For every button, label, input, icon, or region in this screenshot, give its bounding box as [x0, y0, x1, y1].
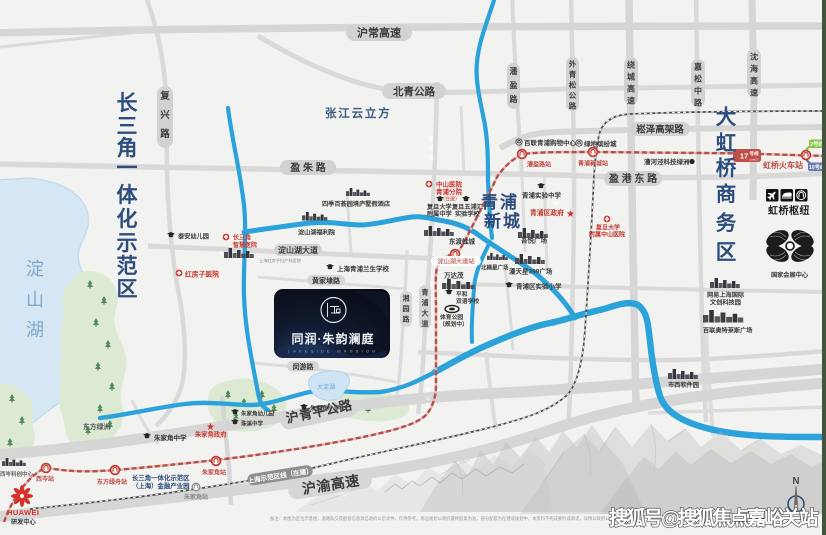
svg-text:大: 大	[716, 105, 737, 129]
svg-text:盈 港 东 路: 盈 港 东 路	[608, 172, 658, 185]
svg-text:三: 三	[117, 115, 138, 138]
svg-text:大: 大	[422, 309, 429, 318]
svg-text:范: 范	[117, 255, 138, 278]
svg-text:沪常高速: 沪常高速	[357, 26, 401, 40]
svg-text:商: 商	[716, 182, 737, 206]
svg-text:智慧医院: 智慧医院	[233, 241, 257, 249]
svg-text:外: 外	[569, 59, 577, 69]
svg-text:附属中山医院: 附属中山医院	[589, 231, 625, 239]
svg-text:闵游路: 闵游路	[293, 362, 315, 371]
svg-text:17: 17	[740, 152, 748, 161]
svg-text:路: 路	[403, 315, 411, 324]
svg-text:朱家角站: 朱家角站	[184, 493, 208, 501]
svg-text:松: 松	[694, 74, 702, 84]
svg-text:东方绿洲: 东方绿洲	[83, 422, 110, 431]
svg-text:（上海）金融产业园: （上海）金融产业园	[132, 481, 190, 490]
svg-text:上海青浦兰生学校: 上海青浦兰生学校	[337, 264, 390, 273]
svg-text:复旦五浦汇: 复旦五浦汇	[451, 203, 484, 211]
svg-text:区: 区	[716, 241, 737, 264]
svg-text:（在建）: （在建）	[440, 196, 460, 203]
svg-text:兴: 兴	[160, 109, 170, 121]
svg-text:虹桥枢纽: 虹桥枢纽	[768, 204, 810, 217]
svg-text:西岑站: 西岑站	[36, 475, 54, 483]
svg-text:虹桥火车站: 虹桥火车站	[763, 160, 803, 170]
svg-text:高: 高	[627, 84, 635, 94]
svg-text:（规划中）: （规划中）	[439, 320, 468, 328]
svg-text:盈: 盈	[509, 81, 518, 90]
svg-text:备注：本图为区位示意图，道路轨交及配套信息源自政府公示文件，: 备注：本图为区位示意图，道路轨交及配套信息源自政府公示文件，仅供参考。周边规划以…	[270, 515, 627, 522]
svg-text:青浦新城站: 青浦新城站	[578, 160, 608, 168]
svg-text:青: 青	[422, 288, 429, 297]
svg-text:北青公路: 北青公路	[393, 85, 435, 98]
svg-text:新城: 新城	[484, 211, 522, 231]
svg-text:淀山湖大道站: 淀山湖大道站	[437, 258, 475, 266]
svg-text:淀山湖福利院: 淀山湖福利院	[298, 229, 336, 237]
svg-text:西岑科创中心: 西岑科创中心	[0, 470, 34, 478]
svg-text:朱家角站: 朱家角站	[202, 469, 226, 477]
svg-text:复旦大学: 复旦大学	[426, 203, 452, 211]
svg-text:漕河泾科技绿洲: 漕河泾科技绿洲	[644, 157, 690, 166]
svg-text:淀山湖大道: 淀山湖大道	[278, 245, 318, 255]
svg-text:一: 一	[117, 157, 138, 180]
svg-text:上海红房子妇产科医院: 上海红房子妇产科医院	[259, 257, 302, 264]
svg-text:海: 海	[750, 64, 758, 74]
svg-text:复: 复	[159, 90, 170, 102]
svg-text:平和: 平和	[456, 290, 468, 298]
svg-text:长三角: 长三角	[233, 234, 251, 242]
svg-text:北横星广场: 北横星广场	[481, 264, 509, 272]
svg-text:复旦大学: 复旦大学	[595, 224, 620, 232]
svg-text:体育公园: 体育公园	[440, 313, 463, 321]
svg-text:青浦: 青浦	[481, 192, 519, 212]
svg-text:青浦分院: 青浦分院	[436, 187, 463, 196]
svg-text:漕盈路站: 漕盈路站	[526, 161, 551, 169]
svg-text:搜狐号@搜狐焦点嘉峪关站: 搜狐号@搜狐焦点嘉峪关站	[609, 507, 819, 530]
svg-text:速: 速	[627, 96, 635, 106]
svg-text:国家会展中心: 国家会展中心	[771, 271, 809, 279]
svg-text:道: 道	[422, 319, 429, 328]
svg-text:号线: 号线	[749, 150, 759, 157]
svg-text:★: ★	[566, 209, 575, 220]
svg-text:青浦区实验小学: 青浦区实验小学	[516, 282, 562, 291]
svg-text:崧泽高架路: 崧泽高架路	[636, 124, 684, 136]
svg-text:朱家角政府: 朱家角政府	[195, 430, 227, 439]
svg-text:公: 公	[569, 91, 577, 100]
svg-text:朱: 朱	[425, 378, 431, 386]
svg-text:研发中心: 研发中心	[11, 518, 37, 526]
svg-text:体: 体	[117, 184, 139, 207]
svg-text:路: 路	[510, 94, 519, 104]
svg-text:网易上海国际: 网易上海国际	[707, 291, 745, 299]
svg-text:青浦区政府: 青浦区政府	[530, 208, 564, 217]
svg-text:泰安幼儿园: 泰安幼儿园	[177, 233, 209, 241]
svg-text:绕: 绕	[627, 60, 635, 70]
svg-text:化: 化	[117, 207, 138, 231]
svg-text:淀: 淀	[26, 259, 44, 279]
svg-text:嘉: 嘉	[693, 62, 702, 72]
svg-text:百联青浦购物中心: 百联青浦购物中心	[524, 138, 577, 147]
svg-text:河: 河	[553, 200, 558, 207]
svg-text:附属中学: 附属中学	[427, 210, 452, 218]
svg-text:朱家角小学: 朱家角小学	[310, 405, 340, 413]
svg-text:LAKESIDE MANSION: LAKESIDE MANSION	[288, 349, 379, 354]
svg-text:珠溪中学: 珠溪中学	[241, 420, 264, 428]
svg-text:淀: 淀	[428, 144, 434, 152]
svg-text:潘: 潘	[510, 66, 519, 76]
svg-text:务: 务	[716, 211, 737, 235]
svg-text:青: 青	[569, 69, 577, 79]
svg-text:四季百荟园境庐墅假酒店: 四季百荟园境庐墅假酒店	[322, 200, 390, 208]
svg-text:长三角一体化示范区: 长三角一体化示范区	[132, 473, 190, 482]
svg-text:盈: 盈	[428, 136, 434, 143]
svg-text:沈: 沈	[750, 52, 758, 62]
svg-text:青浦实验中学: 青浦实验中学	[522, 191, 562, 200]
svg-text:浦: 浦	[422, 298, 429, 307]
svg-text:红房子医院: 红房子医院	[185, 270, 219, 279]
svg-text:N: N	[792, 476, 799, 487]
svg-text:东渡蛙城: 东渡蛙城	[449, 237, 476, 246]
svg-text:区: 区	[117, 278, 138, 301]
svg-text:枫: 枫	[425, 386, 431, 394]
svg-text:市西软件园: 市西软件园	[668, 381, 699, 389]
svg-text:中: 中	[694, 86, 702, 96]
svg-text:园: 园	[403, 304, 410, 313]
svg-text:城: 城	[627, 72, 635, 82]
svg-text:高: 高	[750, 76, 758, 86]
svg-text:Line17: Line17	[749, 158, 758, 162]
svg-text:实验学校: 实验学校	[455, 210, 481, 218]
svg-text:文创科技园: 文创科技园	[710, 299, 741, 307]
svg-text:山: 山	[26, 290, 44, 310]
svg-text:双语学校: 双语学校	[455, 297, 479, 305]
svg-text:朱家角幼儿园: 朱家角幼儿园	[241, 410, 275, 418]
svg-text:桥: 桥	[716, 156, 737, 180]
svg-text:虹: 虹	[716, 132, 737, 155]
svg-text:长: 长	[117, 92, 139, 115]
svg-text:松: 松	[569, 80, 577, 90]
svg-text:东方绿舟站: 东方绿舟站	[97, 478, 127, 486]
svg-text:漫天星399广场: 漫天星399广场	[509, 267, 553, 276]
svg-text:路: 路	[694, 98, 703, 108]
svg-text:路: 路	[160, 128, 170, 140]
svg-text:张江云立方: 张江云立方	[325, 106, 392, 120]
svg-text:中山医院: 中山医院	[436, 180, 463, 189]
svg-text:吾悦广场: 吾悦广场	[521, 236, 548, 245]
svg-text:路: 路	[425, 402, 431, 410]
svg-text:绿地缤纷城: 绿地缤纷城	[584, 139, 617, 148]
svg-text:公: 公	[425, 396, 431, 402]
svg-text:路: 路	[569, 101, 577, 111]
svg-text:黄家埭路: 黄家埭路	[312, 276, 341, 285]
svg-text:百联奥特莱斯广场: 百联奥特莱斯广场	[703, 327, 753, 335]
svg-text:HUAWEI: HUAWEI	[7, 508, 39, 517]
svg-text:湖: 湖	[26, 320, 44, 340]
svg-text:大淀湖: 大淀湖	[317, 383, 335, 391]
svg-text:路: 路	[428, 153, 434, 161]
svg-text:万达茂: 万达茂	[443, 271, 464, 280]
svg-text:示: 示	[117, 232, 138, 255]
svg-text:速: 速	[750, 88, 758, 98]
svg-text:同润·朱韵澜庭: 同润·朱韵澜庭	[292, 331, 375, 346]
svg-text:朱家角中学: 朱家角中学	[154, 433, 187, 442]
svg-text:湘: 湘	[403, 294, 410, 303]
svg-text:盈 朱 路: 盈 朱 路	[289, 161, 327, 174]
